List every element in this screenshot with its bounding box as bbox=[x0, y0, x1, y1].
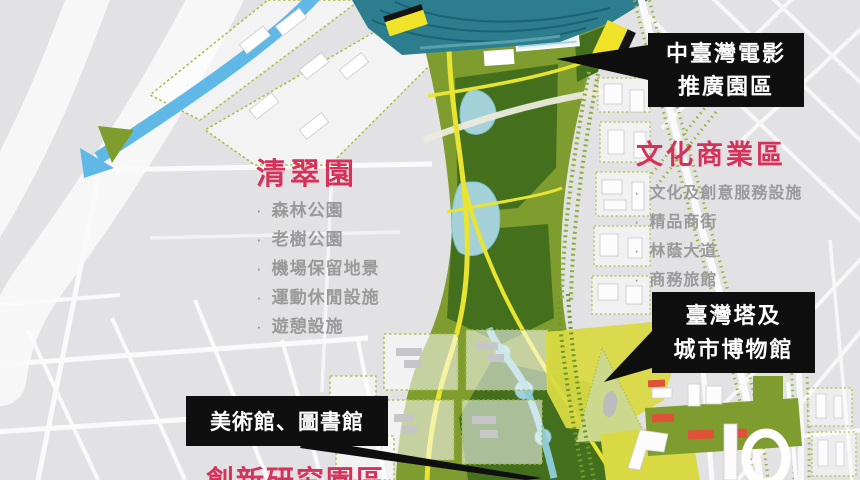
urban-plan-infographic: 中臺灣電影 推廣園區 臺灣塔及 城市博物館 美術館、圖書館 文化商業區 清翠園 … bbox=[0, 0, 860, 480]
district-title-cultural-commercial: 文化商業區 bbox=[636, 133, 786, 172]
district-title-innovation-park: 創新研究園區 bbox=[206, 459, 386, 480]
list-item: 遊憩設施 bbox=[256, 312, 380, 341]
callout-museum-library: 美術館、圖書館 bbox=[186, 396, 388, 446]
callout-film-park-line2: 推廣園區 bbox=[678, 70, 774, 103]
district-title-qingcui-park: 清翠園 bbox=[256, 149, 358, 193]
list-item: 精品商街 bbox=[634, 208, 802, 237]
callout-taiwan-tower-line2: 城市博物館 bbox=[673, 333, 793, 367]
list-item: 森林公園 bbox=[256, 196, 380, 225]
callout-taiwan-tower: 臺灣塔及 城市博物館 bbox=[652, 292, 815, 373]
list-item: 運動休閒設施 bbox=[256, 283, 380, 312]
callout-taiwan-tower-line1: 臺灣塔及 bbox=[685, 299, 781, 333]
list-item: 林蔭大道 bbox=[634, 237, 802, 266]
callout-museum-library-text: 美術館、圖書館 bbox=[210, 406, 364, 436]
list-item: 商務旅館 bbox=[634, 266, 802, 295]
cultural-commercial-item-list: 文化及創意服務設施 精品商街 林蔭大道 商務旅館 bbox=[634, 179, 802, 295]
qingcui-park-item-list: 森林公園 老樹公園 機場保留地景 運動休閒設施 遊憩設施 bbox=[256, 196, 380, 341]
callout-film-park: 中臺灣電影 推廣園區 bbox=[648, 33, 804, 107]
callout-film-park-line1: 中臺灣電影 bbox=[666, 37, 786, 70]
list-item: 文化及創意服務設施 bbox=[634, 179, 802, 208]
list-item: 老樹公園 bbox=[256, 225, 380, 254]
list-item: 機場保留地景 bbox=[256, 254, 380, 283]
